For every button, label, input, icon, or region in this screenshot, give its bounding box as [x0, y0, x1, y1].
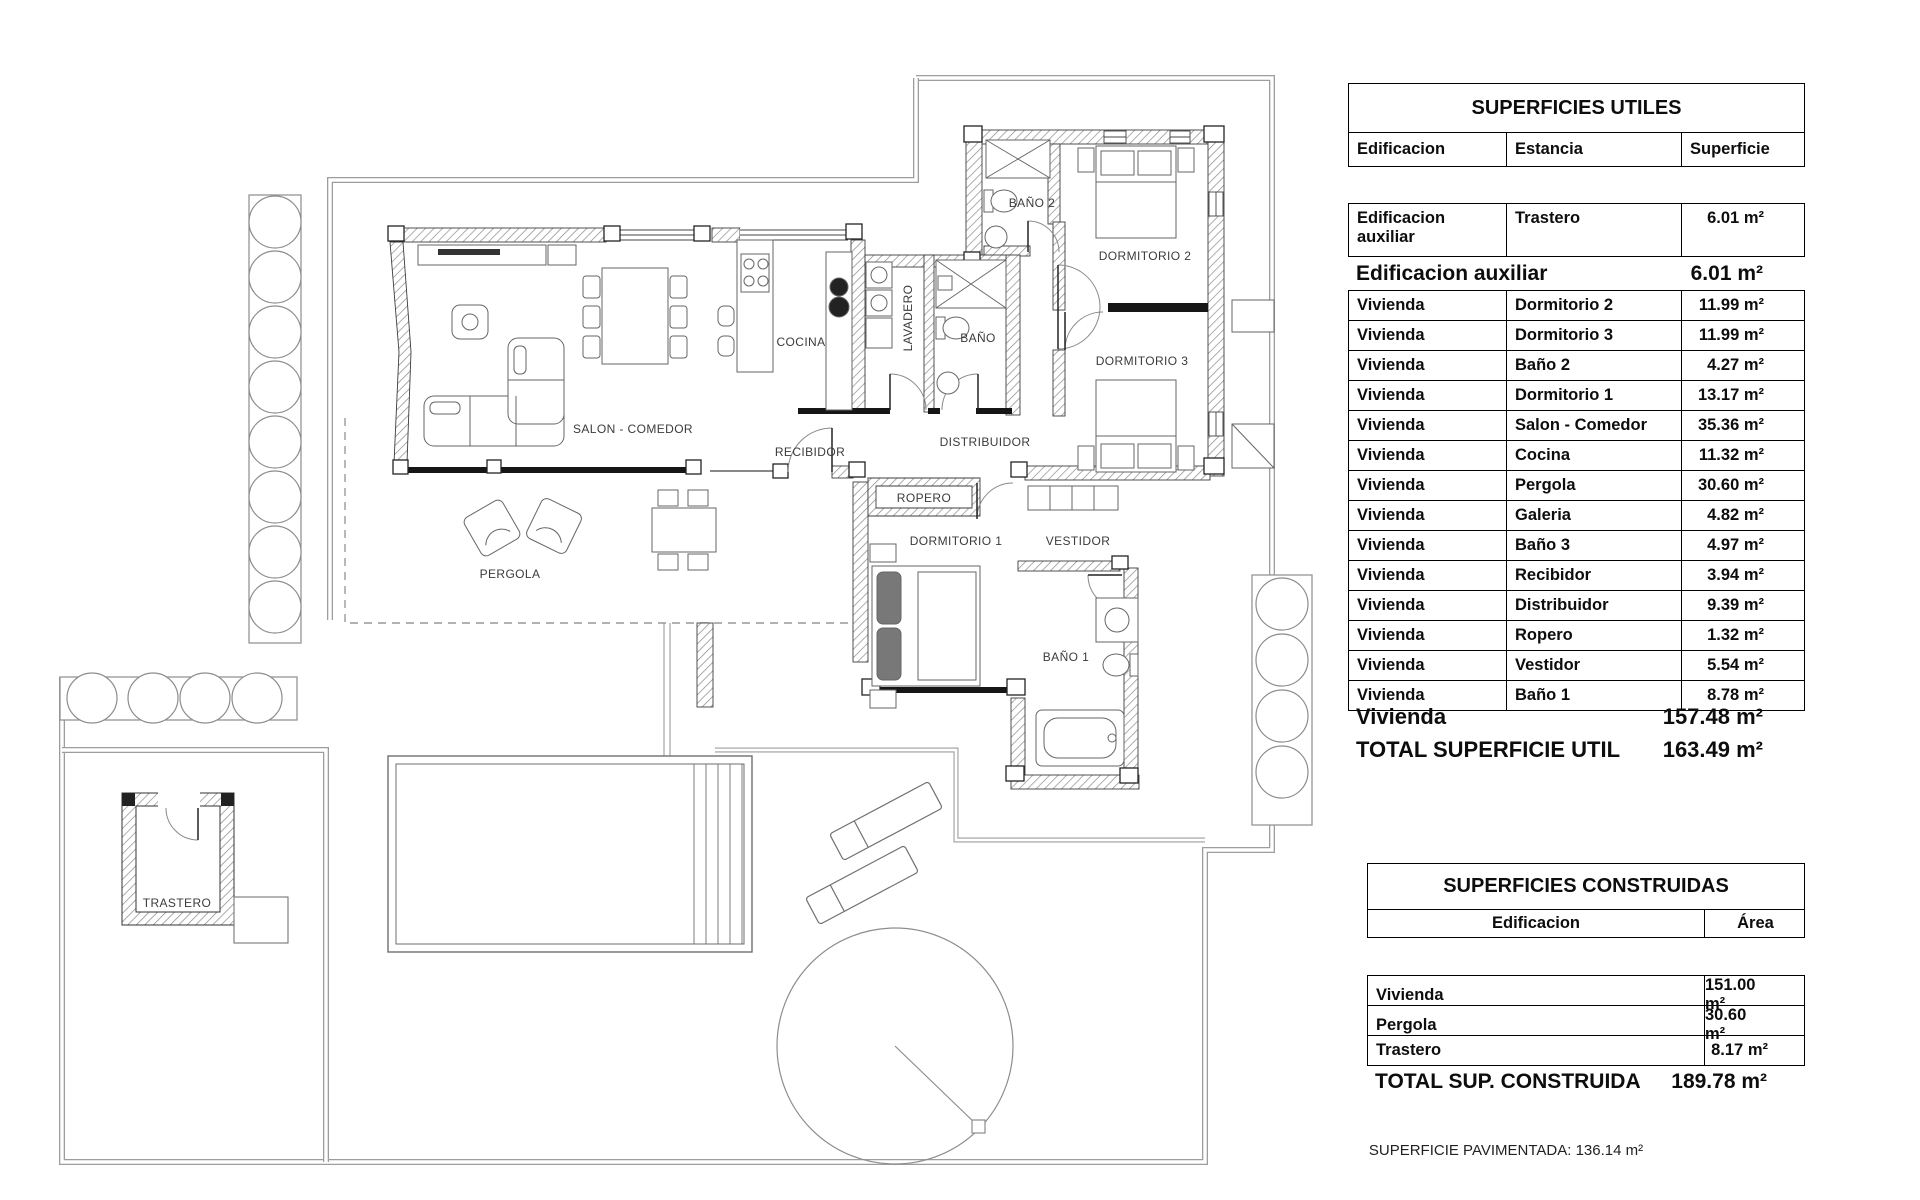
- bathroom-2: [984, 140, 1050, 248]
- pool: [388, 756, 752, 952]
- room-label-recibidor: RECIBIDOR: [775, 445, 845, 459]
- room-label-bano1: BAÑO 1: [1043, 650, 1089, 664]
- total-construida-label: TOTAL SUP. CONSTRUIDA: [1367, 1070, 1641, 1094]
- room-label-dormitorio2: DORMITORIO 2: [1099, 249, 1192, 263]
- utiles-rows: ViviendaDormitorio 211.99 m² ViviendaDor…: [1348, 290, 1805, 711]
- kitchen-counter: [826, 252, 852, 410]
- room-label-bano: BAÑO: [960, 331, 996, 345]
- col-header-estancia: Estancia: [1506, 133, 1681, 166]
- aux-subtotal-value: 6.01 m²: [1691, 262, 1805, 286]
- total-util-row: TOTAL SUPERFICIE UTIL 163.49 m²: [1348, 733, 1805, 767]
- aux-row: Edificacion auxiliar Trastero 6.01 m²: [1348, 203, 1805, 257]
- aux-estancia: Trastero: [1506, 204, 1681, 256]
- total-construida-row: TOTAL SUP. CONSTRUIDA 189.78 m²: [1367, 1064, 1805, 1100]
- bed-dorm1: [870, 544, 980, 708]
- construidas-rows: Vivienda151.00 m² Pergola30.60 m² Traste…: [1367, 975, 1805, 1066]
- table-row: ViviendaRecibidor3.94 m²: [1349, 560, 1804, 590]
- col-header-superficie: Superficie: [1681, 133, 1806, 166]
- vivienda-subtotal-row: Vivienda 157.48 m²: [1348, 700, 1805, 734]
- vivienda-subtotal-label: Vivienda: [1348, 704, 1446, 730]
- room-label-ropero: ROPERO: [897, 491, 951, 505]
- bathroom-mid: [936, 260, 1006, 394]
- aux-superficie: 6.01 m²: [1681, 204, 1806, 256]
- table-row: ViviendaDormitorio 211.99 m²: [1349, 291, 1804, 320]
- galeria-unit: [1232, 300, 1274, 332]
- wardrobe-vestidor: [1028, 486, 1118, 510]
- table-row: ViviendaBaño 24.27 m²: [1349, 350, 1804, 380]
- total-construida-value: 189.78 m²: [1671, 1070, 1805, 1094]
- table-row: ViviendaDormitorio 311.99 m²: [1349, 320, 1804, 350]
- page: SALON - COMEDOR COCINA LAVADERO BAÑO BAÑ…: [0, 0, 1920, 1200]
- trastero-building: [122, 791, 288, 943]
- pavimentada-note: SUPERFICIE PAVIMENTADA: 136.14 m²: [1356, 1142, 1656, 1159]
- room-label-dormitorio3: DORMITORIO 3: [1096, 354, 1189, 368]
- aux-subtotal-label: Edificacion auxiliar: [1348, 262, 1547, 286]
- aux-edificacion: Edificacion auxiliar: [1349, 204, 1506, 256]
- room-label-dormitorio1: DORMITORIO 1: [910, 534, 1003, 548]
- room-label-pergola: PERGOLA: [480, 567, 541, 581]
- bed-dorm2: [1078, 146, 1194, 238]
- col-header-edificacion-2: Edificacion: [1368, 910, 1704, 937]
- big-tree: [777, 928, 1013, 1164]
- dining-table: [583, 268, 687, 364]
- sofa: [424, 338, 564, 446]
- col-header-edificacion: Edificacion: [1349, 133, 1506, 166]
- pool-steps: [694, 764, 742, 944]
- col-header-area: Área: [1704, 910, 1806, 937]
- room-label-cocina: COCINA: [776, 335, 825, 349]
- floor-plan: SALON - COMEDOR COCINA LAVADERO BAÑO BAÑ…: [0, 0, 1340, 1200]
- room-label-distribuidor: DISTRIBUIDOR: [940, 435, 1031, 449]
- utiles-header: SUPERFICIES UTILES Edificacion Estancia …: [1348, 83, 1805, 167]
- construidas-header: SUPERFICIES CONSTRUIDAS Edificacion Área: [1367, 863, 1805, 938]
- table-row: ViviendaRopero1.32 m²: [1349, 620, 1804, 650]
- washer-dryer: [866, 262, 892, 348]
- sun-loungers: [806, 781, 943, 924]
- tv: [438, 249, 500, 255]
- table-row: ViviendaDistribuidor9.39 m²: [1349, 590, 1804, 620]
- room-label-bano2: BAÑO 2: [1009, 196, 1055, 210]
- pergola-table: [652, 490, 716, 570]
- room-label-vestidor: VESTIDOR: [1046, 534, 1111, 548]
- pergola-armchairs: [462, 497, 583, 558]
- kitchen-island: [718, 240, 773, 372]
- sink: [830, 278, 848, 296]
- table-row: ViviendaVestidor5.54 m²: [1349, 650, 1804, 680]
- table-row: ViviendaSalon - Comedor35.36 m²: [1349, 410, 1804, 440]
- room-label-trastero: TRASTERO: [143, 896, 212, 910]
- total-util-label: TOTAL SUPERFICIE UTIL: [1348, 737, 1620, 763]
- room-label-salon: SALON - COMEDOR: [573, 422, 693, 436]
- vivienda-subtotal-value: 157.48 m²: [1663, 704, 1805, 730]
- table-row: ViviendaCocina11.32 m²: [1349, 440, 1804, 470]
- table-row: ViviendaPergola30.60 m²: [1349, 470, 1804, 500]
- aux-subtotal-row: Edificacion auxiliar 6.01 m²: [1348, 258, 1805, 290]
- table-row: Trastero8.17 m²: [1368, 1035, 1804, 1065]
- table-row: Vivienda151.00 m²: [1368, 976, 1804, 1005]
- bathroom-1: [1036, 598, 1138, 766]
- bed-dorm3: [1078, 380, 1194, 472]
- table-row: Pergola30.60 m²: [1368, 1005, 1804, 1035]
- construidas-title: SUPERFICIES CONSTRUIDAS: [1368, 864, 1804, 909]
- table-row: ViviendaBaño 34.97 m²: [1349, 530, 1804, 560]
- table-row: ViviendaDormitorio 113.17 m²: [1349, 380, 1804, 410]
- total-util-value: 163.49 m²: [1663, 737, 1805, 763]
- table-row: ViviendaGaleria4.82 m²: [1349, 500, 1804, 530]
- utiles-title: SUPERFICIES UTILES: [1349, 84, 1804, 132]
- room-label-lavadero: LAVADERO: [901, 285, 915, 352]
